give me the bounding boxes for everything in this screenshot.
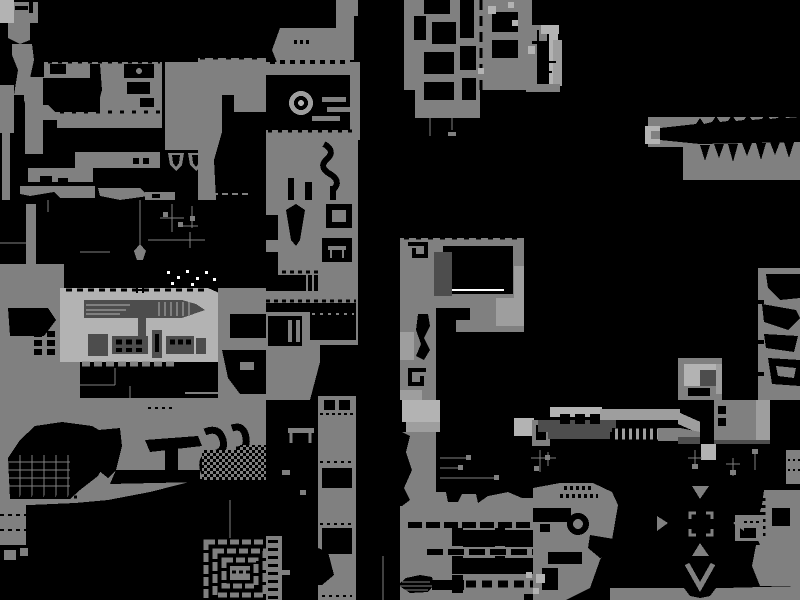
win [324,400,335,410]
wire-node [494,475,499,480]
room [432,22,456,44]
slot [288,178,294,200]
slot [452,556,463,574]
room [424,0,450,14]
east-corner [752,545,800,586]
wire-node [466,455,471,460]
room [310,312,356,340]
room-inner [332,210,346,222]
slot [330,186,336,200]
tower-light [701,444,716,460]
wire-node [730,470,736,475]
left-bump [0,85,14,133]
machine-room3 [140,98,154,107]
slot [305,182,312,200]
corner-detail [15,6,28,10]
meander [408,382,424,386]
ship-pillar [138,318,146,336]
slot [505,558,535,574]
module [166,336,194,354]
module [88,334,108,356]
light-speck [512,20,518,26]
tunnel [548,552,582,564]
tower-edge [756,400,770,440]
small-room-dark [700,370,716,386]
slot [452,575,463,593]
shore-win [40,176,52,184]
machine-room2 [127,82,150,94]
debris [20,548,28,556]
pocket [266,215,278,240]
train-lower [548,432,610,439]
rubble-dither [240,445,266,478]
light-speck [488,6,496,14]
train-top-mid [600,409,680,420]
island-room [50,64,66,74]
pod-light [514,418,534,436]
pocket [540,524,550,532]
east-pocket [772,508,790,526]
meander [412,254,428,258]
shaft-cap2 [406,422,440,432]
window [296,320,300,342]
left-pillar [26,204,36,266]
small-room-edge [716,364,722,394]
descender-light [400,332,414,360]
lab-panel-bottom [496,298,524,326]
debris [4,550,16,560]
left-edge-strip [2,133,10,200]
debris [282,470,290,475]
east-bottom [724,586,800,600]
room [322,528,352,554]
win [339,400,350,410]
tunnel [165,448,178,470]
bottom-strip-west [610,588,678,600]
train-box [571,439,583,447]
module [196,338,206,354]
room [460,46,476,70]
light-chip [536,574,545,583]
east-ledge [786,450,800,484]
tower-win [718,406,726,414]
room [424,82,454,100]
debris [300,490,306,495]
shaft-cap [402,400,440,422]
cave-debris [240,362,254,370]
train-win [575,414,585,424]
light-speck [526,572,532,578]
edge-tick [758,372,764,376]
world-map-canvas[interactable] [0,0,800,600]
debris-win [133,158,139,164]
light-chip [533,588,539,594]
spike-band-low [683,147,800,180]
slot [495,556,505,574]
wire-node [692,464,698,469]
ledge-dash [312,116,340,121]
wire-node [163,212,168,217]
meander [408,368,412,382]
shore-win [58,178,68,186]
mark [734,124,742,130]
game-map-screen [0,0,800,600]
wire-node [752,449,758,454]
island-hall [83,128,157,152]
room [462,78,476,100]
train-box [556,439,568,447]
tunnel [110,470,200,484]
pocket [43,120,57,140]
target-circle-core [298,100,304,106]
wire-node [178,222,183,227]
bracket-speck [528,46,535,54]
ledge-dash [322,97,346,102]
wire-node [534,466,539,471]
room [460,0,474,38]
debris [280,570,290,575]
west-ledge [0,505,26,545]
room [414,16,426,40]
train-win [560,414,570,424]
corridor2 [266,303,356,312]
edge-tick [758,340,764,344]
bracket-base [526,84,560,92]
tower-black [700,400,714,444]
ledge-dash [327,107,351,112]
island-mid-band [42,112,162,128]
descender-light2 [400,390,422,400]
table-icon-top [288,428,314,433]
wire-node [458,465,463,470]
ring-core [573,519,583,529]
east-cave [230,314,266,338]
neck-nub [352,0,358,16]
meander [412,248,416,254]
slot [495,528,505,546]
room [424,52,454,74]
wire-node [545,455,550,460]
west-shelf [0,264,64,290]
lab-dark-slab [434,252,452,296]
machine-dot [136,68,142,74]
corner-detail [29,0,33,13]
light-speck [508,2,514,8]
light-speck [478,68,484,74]
tower-slot [155,334,159,352]
mark [754,124,762,130]
corridor [266,275,318,291]
corridor [533,508,571,522]
edge-tick [758,300,764,304]
shore-notch [152,194,160,198]
debris-win [143,158,149,164]
wire-node [448,132,456,136]
room [322,468,352,488]
head-right-wall [350,62,360,140]
corner-light-room [0,0,14,23]
lab-room [443,246,513,294]
slot [463,558,495,574]
window [288,320,292,342]
slot [452,528,463,546]
wire-node [190,216,195,221]
island-left-col [25,90,43,154]
slot [463,530,495,547]
train-win [590,414,600,424]
lab-light-line [446,289,504,291]
table-top [328,246,346,250]
room [492,40,518,58]
small-room-slot [688,388,710,396]
train-box [586,439,598,446]
slot [505,530,535,547]
tower-win [718,418,726,426]
